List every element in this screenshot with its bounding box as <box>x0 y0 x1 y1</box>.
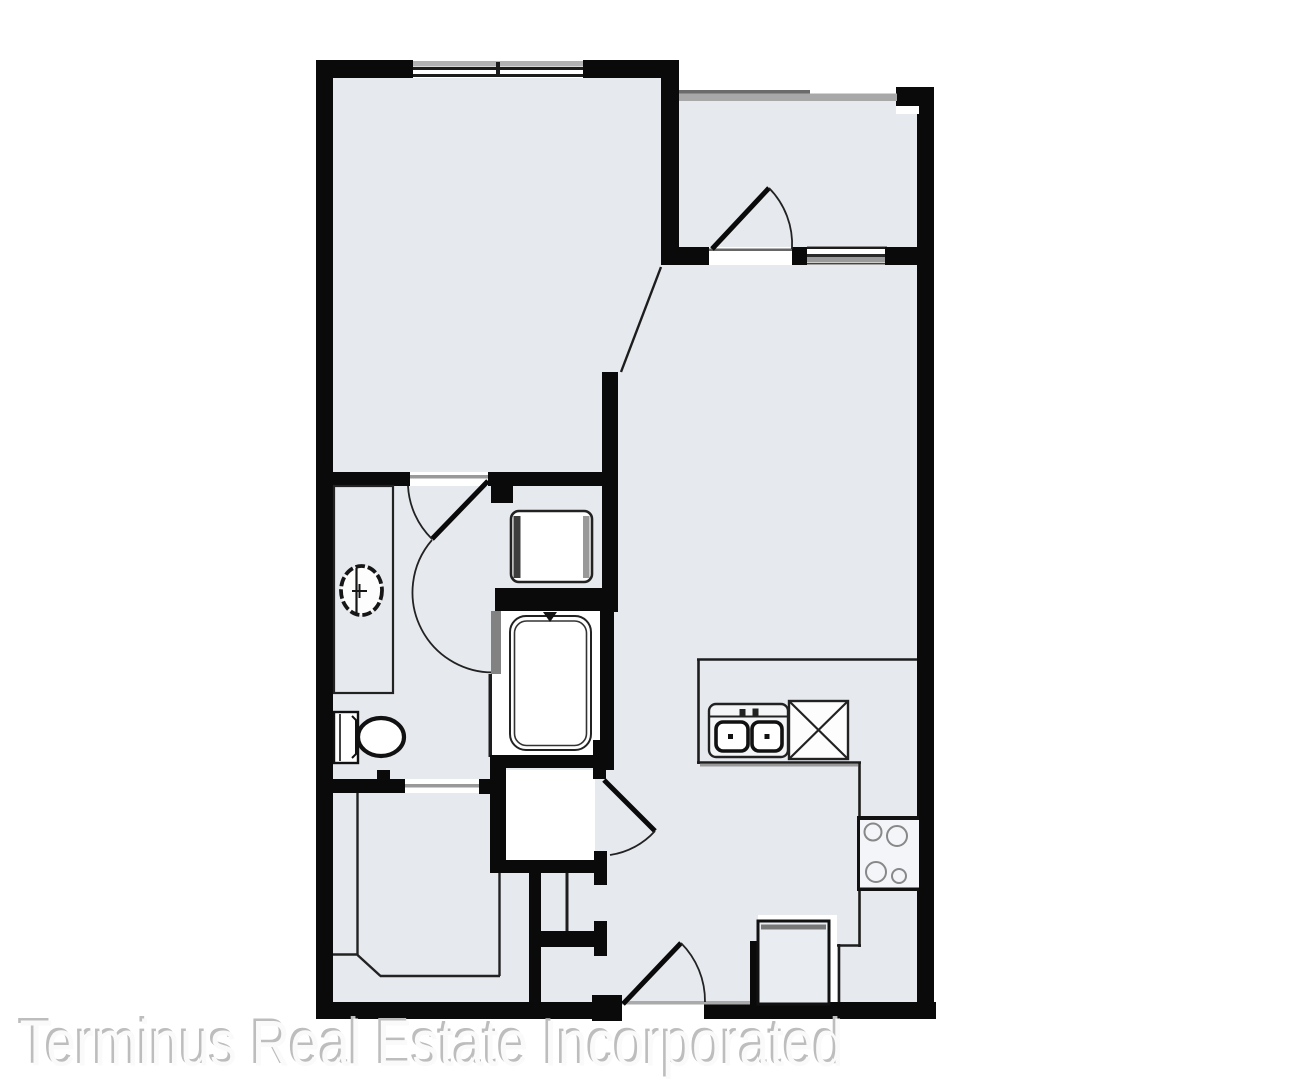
svg-text:Terminus Real Estate Incorpora: Terminus Real Estate Incorporated <box>20 1006 844 1079</box>
